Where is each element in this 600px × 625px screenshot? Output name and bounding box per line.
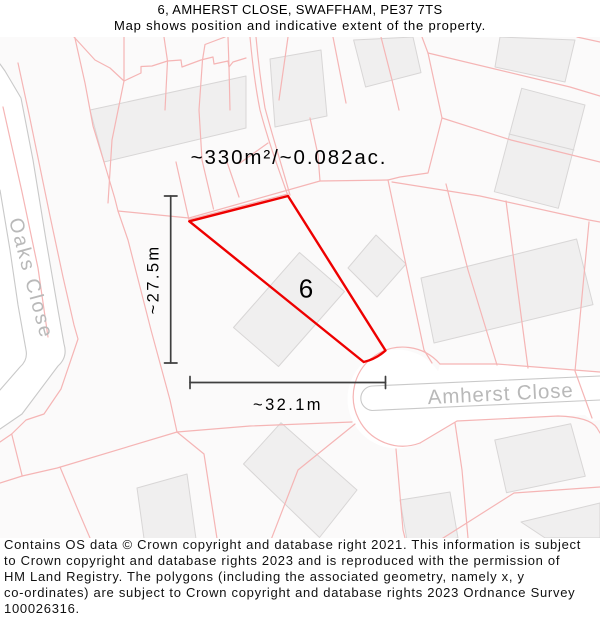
- svg-text:~32.1m: ~32.1m: [253, 396, 323, 414]
- svg-text:6: 6: [299, 274, 313, 304]
- svg-text:~27.5m: ~27.5m: [145, 244, 163, 314]
- svg-text:~330m²/~0.082ac.: ~330m²/~0.082ac.: [191, 146, 388, 169]
